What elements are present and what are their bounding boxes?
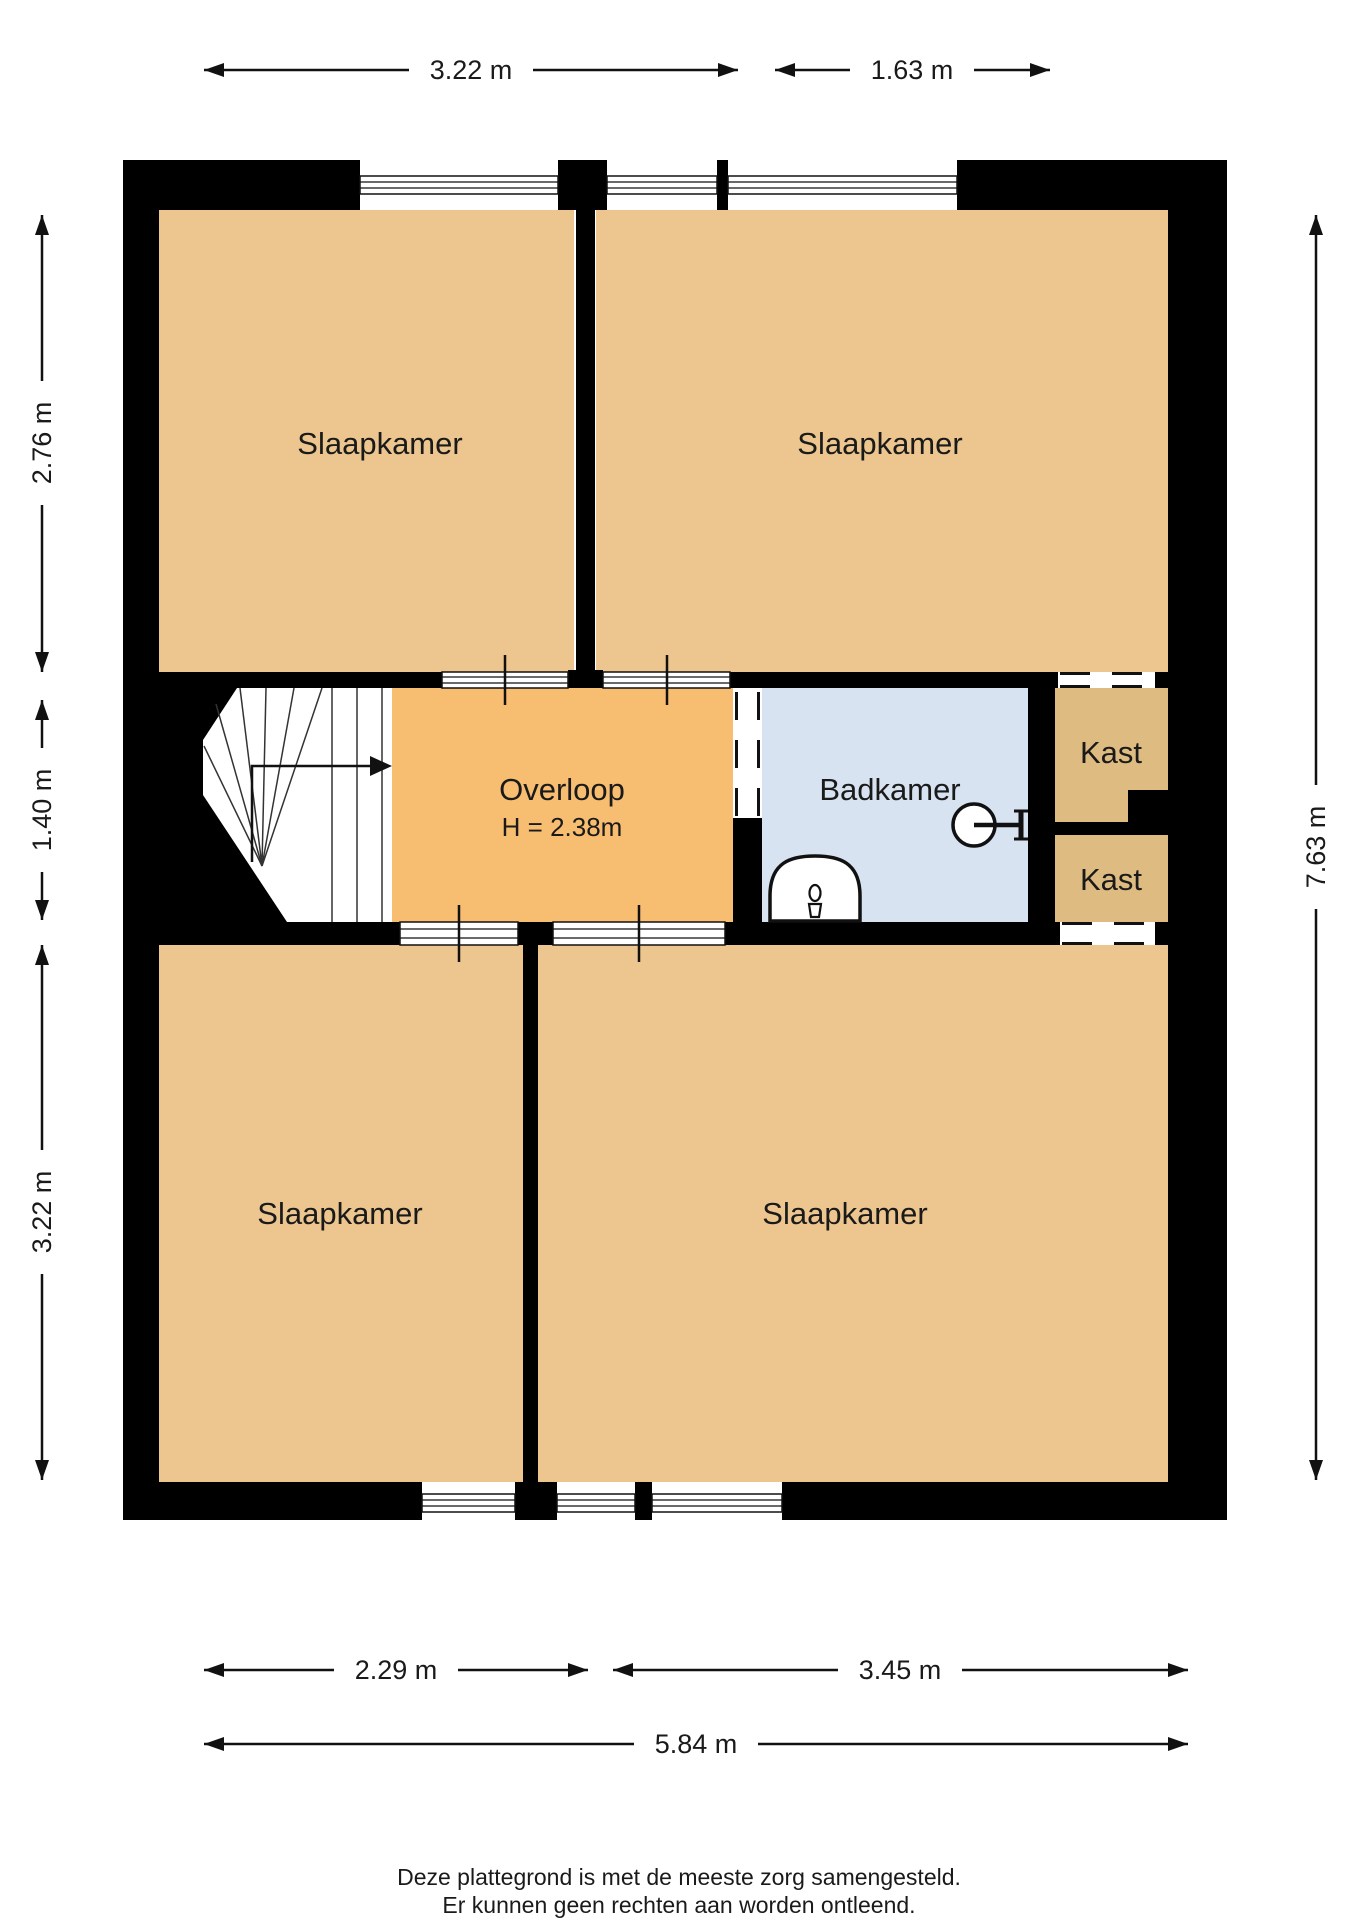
sink-icon [953, 804, 1028, 846]
hall-wall-bottom-right [725, 922, 1060, 945]
footer-disclaimer-line1: Deze plattegrond is met de meeste zorg s… [397, 1864, 961, 1890]
dimension-left-2: 1.40 m [27, 700, 57, 920]
hall-wall-bottom-pillar [518, 922, 553, 945]
dimension-top-1: 3.22 m [204, 55, 738, 85]
divider-top-junction [568, 670, 603, 688]
dim-left-1: 2.76 m [27, 402, 57, 485]
label-kast-upper: Kast [1080, 735, 1142, 770]
wall-kast-notch [1128, 790, 1168, 835]
floor-plan: Slaapkamer Slaapkamer Slaapkamer Slaapka… [0, 0, 1358, 1920]
windows-top-wall [360, 160, 957, 210]
window [557, 1482, 635, 1520]
dimension-top-2: 1.63 m [775, 55, 1050, 85]
windows-bottom-wall [422, 1482, 782, 1520]
label-slaapkamer-top-right: Slaapkamer [797, 426, 962, 461]
window [728, 160, 957, 210]
divider-bottom-junction [518, 1482, 553, 1520]
dim-left-3: 3.22 m [27, 1171, 57, 1254]
dimension-left-1: 2.76 m [27, 215, 57, 672]
divider-bottom-bedrooms [523, 945, 538, 1482]
window [652, 1482, 782, 1520]
hall-wall-top-right [730, 672, 1058, 688]
dim-bottom-2: 3.45 m [859, 1655, 942, 1685]
label-overloop: Overloop [499, 772, 625, 807]
dim-top-1: 3.22 m [430, 55, 513, 85]
divider-top-bedrooms-pillar [573, 160, 596, 210]
hall-wall-top-end [1155, 672, 1168, 688]
wall-overloop-badkamer [733, 818, 762, 922]
label-badkamer: Badkamer [819, 772, 960, 807]
dim-bottom-1: 2.29 m [355, 1655, 438, 1685]
dim-bottom-3: 5.84 m [655, 1729, 738, 1759]
dimension-bottom-2: 3.45 m [613, 1655, 1188, 1685]
dim-left-2: 1.40 m [27, 769, 57, 852]
label-overloop-height: H = 2.38m [502, 812, 623, 842]
hall-wall-bottom-left [159, 922, 400, 945]
dim-top-2: 1.63 m [871, 55, 954, 85]
label-slaapkamer-top-left: Slaapkamer [297, 426, 462, 461]
toilet-icon [770, 856, 860, 921]
divider-top-bedrooms [576, 210, 595, 672]
footer-disclaimer-line2: Er kunnen geen rechten aan worden ontlee… [442, 1892, 915, 1918]
dimension-right-1: 7.63 m [1301, 215, 1331, 1480]
label-kast-lower: Kast [1080, 862, 1142, 897]
dimension-bottom-1: 2.29 m [204, 1655, 588, 1685]
door-opening-kast-lower [1060, 922, 1155, 945]
label-slaapkamer-bottom-left: Slaapkamer [257, 1196, 422, 1231]
staircase [159, 672, 392, 922]
door-opening-kast-upper [1058, 672, 1155, 688]
hall-wall-bottom-end [1155, 922, 1168, 945]
dimension-left-3: 3.22 m [27, 945, 57, 1480]
hall-wall-top-left [159, 672, 442, 688]
wall-badkamer-kast [1028, 688, 1055, 945]
footer: Deze plattegrond is met de meeste zorg s… [397, 1864, 961, 1918]
label-slaapkamer-bottom-right: Slaapkamer [762, 1196, 927, 1231]
door-opening-badkamer [733, 688, 762, 818]
dim-right-1: 7.63 m [1301, 806, 1331, 889]
dimension-bottom-3: 5.84 m [204, 1729, 1188, 1759]
exterior-wall-left [123, 160, 159, 1520]
window [360, 160, 558, 210]
window [422, 1482, 515, 1520]
window [607, 160, 717, 210]
exterior-wall-right [1168, 160, 1227, 1520]
